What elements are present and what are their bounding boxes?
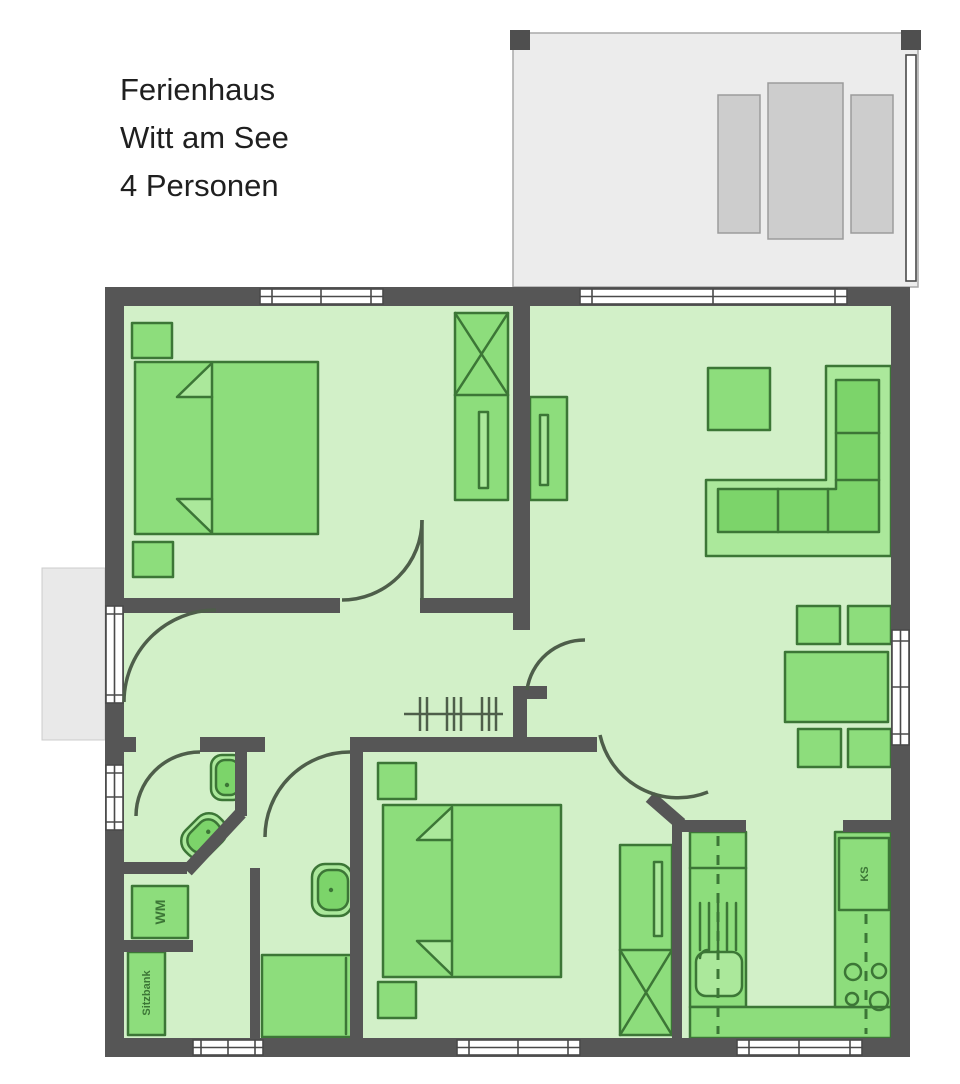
window-bedroom2-bottom bbox=[457, 1040, 580, 1055]
dining-chair bbox=[798, 729, 841, 767]
wall-wc-bottom bbox=[124, 862, 187, 874]
title-line-2: Witt am See bbox=[120, 120, 289, 155]
bed-1 bbox=[135, 362, 318, 534]
coffee-table bbox=[708, 368, 770, 430]
dining-chair bbox=[848, 606, 891, 644]
terrace-post-right bbox=[901, 30, 921, 50]
wall-bedroom1-hall-b bbox=[420, 598, 530, 613]
dining-chair bbox=[797, 606, 840, 644]
wall-bedroom1-living bbox=[513, 306, 530, 630]
dining-table bbox=[785, 652, 888, 722]
terrace bbox=[510, 30, 921, 287]
title-line-3: 4 Personen bbox=[120, 168, 279, 203]
window-kitchen-bottom bbox=[737, 1040, 862, 1055]
nightstand bbox=[132, 323, 172, 358]
wardrobe-2 bbox=[620, 845, 672, 1035]
wall-bedroom2-right bbox=[672, 823, 682, 1038]
wc-toilet-dot bbox=[225, 783, 229, 787]
wall-kitchen-top-right bbox=[843, 820, 891, 832]
terrace-railing bbox=[906, 55, 916, 281]
wardrobe-1-handle bbox=[479, 412, 488, 488]
radiator bbox=[404, 697, 503, 731]
dining-area bbox=[785, 606, 891, 767]
page-title: Ferienhaus Witt am See 4 Personen bbox=[120, 72, 289, 203]
dining-chair bbox=[848, 729, 891, 767]
wall-kitchen-top-left bbox=[672, 820, 746, 832]
nightstand bbox=[378, 763, 416, 799]
label-wm: WM bbox=[152, 900, 168, 925]
nightstand bbox=[378, 982, 416, 1018]
window-utility-bottom bbox=[193, 1040, 263, 1055]
floor-plan-svg: WM Sitzbank KS bbox=[0, 0, 960, 1084]
window-bedroom1-top bbox=[260, 289, 383, 304]
nightstand bbox=[133, 542, 173, 577]
kitchen-counter-bottom bbox=[690, 1007, 891, 1038]
wardrobe-2-handle bbox=[654, 862, 662, 936]
entrance-door-frame bbox=[106, 606, 123, 703]
bed-2 bbox=[383, 805, 561, 977]
window-terrace-door bbox=[580, 289, 847, 304]
terrace-chair-right bbox=[851, 95, 893, 233]
terrace-post-left bbox=[510, 30, 530, 50]
wall-bath-utility bbox=[250, 868, 260, 1038]
wall-niche bbox=[124, 940, 193, 952]
wall-bedroom1-hall-a bbox=[124, 598, 340, 613]
title-line-1: Ferienhaus bbox=[120, 72, 275, 107]
wall-bedroom2-left bbox=[350, 752, 363, 1038]
terrace-table bbox=[768, 83, 843, 239]
wall-hall-band-a bbox=[124, 737, 136, 752]
tall-cabinet-handle bbox=[540, 415, 548, 485]
window-wc-left bbox=[106, 765, 123, 830]
floor-plan-page: WM Sitzbank KS bbox=[0, 0, 960, 1084]
window-dining-right bbox=[892, 630, 909, 745]
label-ks: KS bbox=[859, 866, 871, 881]
wall-bedroom2-top bbox=[350, 737, 597, 752]
wall-wc-right bbox=[235, 752, 247, 816]
terrace-chair-left bbox=[718, 95, 760, 233]
wall-hall-band-b bbox=[200, 737, 265, 752]
entrance-porch bbox=[42, 568, 105, 740]
washbasin-dot bbox=[329, 888, 333, 892]
label-sitzbank: Sitzbank bbox=[141, 970, 153, 1016]
